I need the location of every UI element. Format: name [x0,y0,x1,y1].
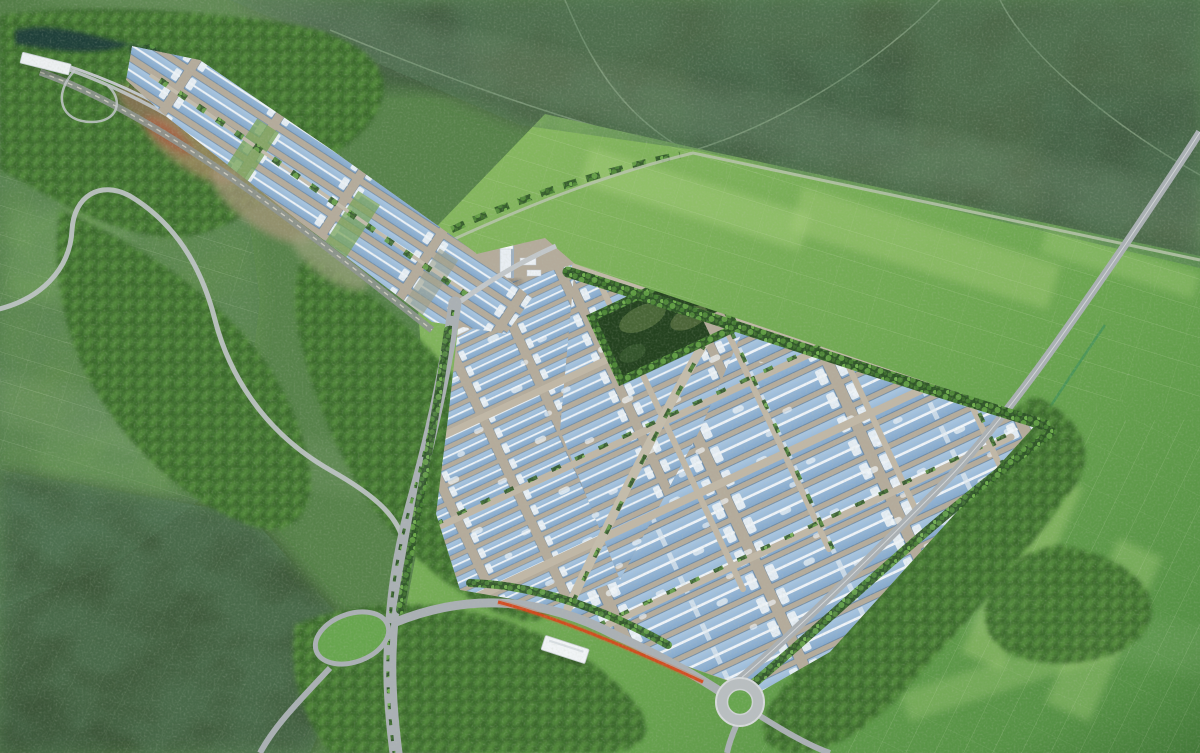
aerial-render-image [0,0,1200,753]
vignette-overlay [0,0,1200,753]
industrial-park-scene [0,0,1200,753]
